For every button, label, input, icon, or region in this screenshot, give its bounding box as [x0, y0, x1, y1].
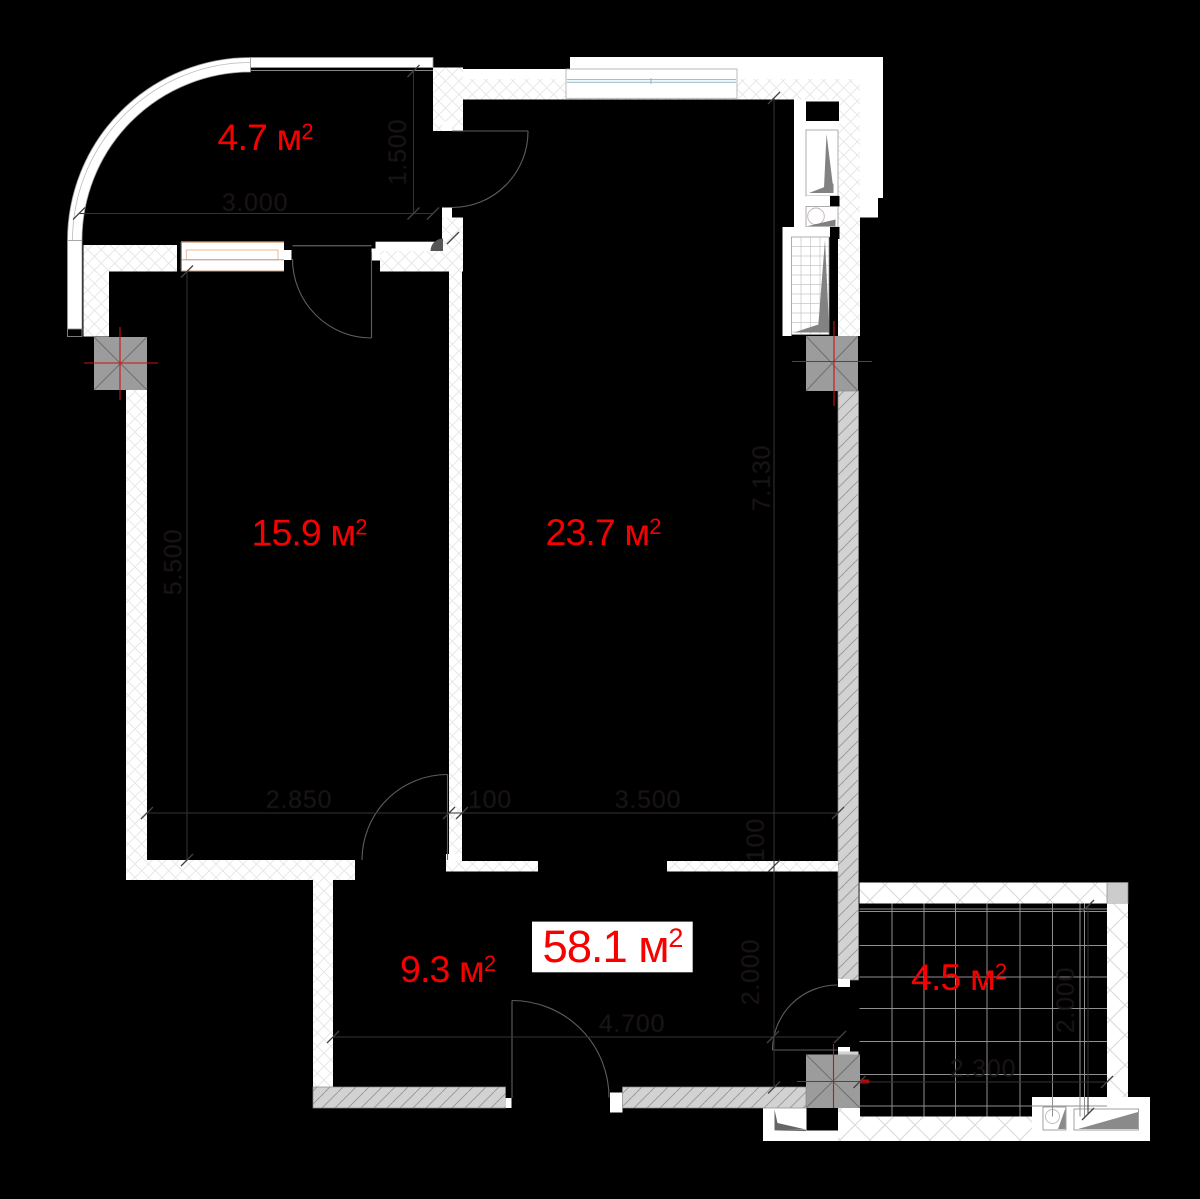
svg-text:3.500: 3.500: [615, 786, 682, 814]
svg-text:1.500: 1.500: [384, 119, 412, 186]
svg-text:58.1 м2: 58.1 м2: [543, 921, 683, 972]
svg-text:4.700: 4.700: [599, 1010, 666, 1038]
svg-text:100: 100: [742, 818, 770, 862]
svg-text:23.7 м2: 23.7 м2: [546, 511, 662, 553]
svg-text:2.000: 2.000: [1052, 967, 1080, 1034]
svg-text:9.3 м2: 9.3 м2: [400, 948, 496, 990]
svg-text:3.000: 3.000: [222, 189, 289, 217]
svg-text:4.5 м2: 4.5 м2: [911, 956, 1007, 998]
svg-text:7.130: 7.130: [748, 445, 776, 512]
svg-text:100: 100: [468, 786, 512, 814]
svg-text:2.300: 2.300: [950, 1055, 1017, 1083]
svg-text:2.000: 2.000: [737, 939, 765, 1006]
svg-text:2.850: 2.850: [266, 786, 333, 814]
svg-text:5.500: 5.500: [160, 529, 188, 596]
svg-text:4.7 м2: 4.7 м2: [218, 116, 314, 158]
svg-text:15.9 м2: 15.9 м2: [252, 512, 368, 554]
